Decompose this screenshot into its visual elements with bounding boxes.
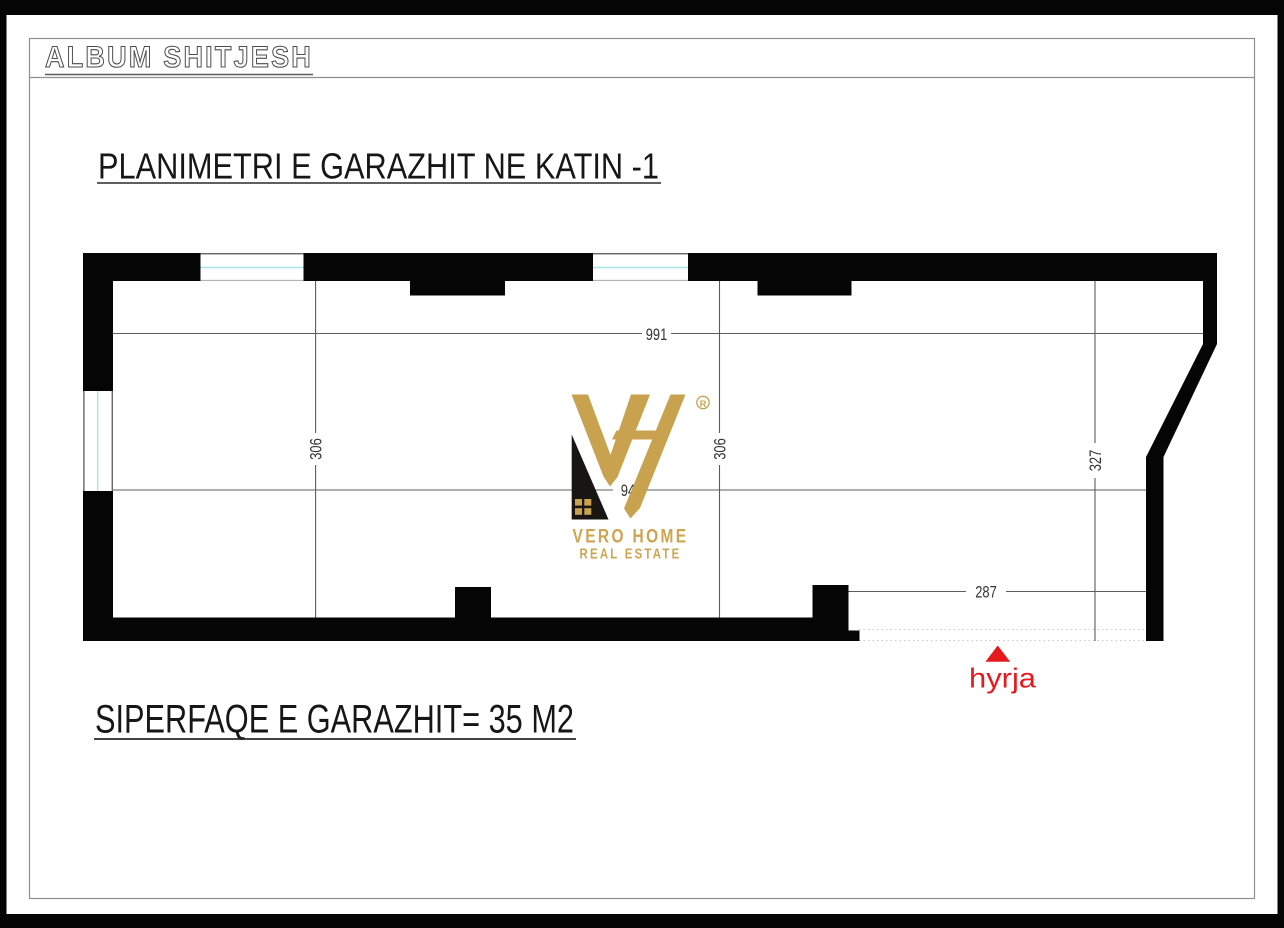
svg-text:hyrja: hyrja <box>969 663 1037 694</box>
svg-text:287: 287 <box>975 583 997 602</box>
svg-text:306: 306 <box>711 438 730 460</box>
svg-text:306: 306 <box>307 438 326 460</box>
svg-text:PLANIMETRI E GARAZHIT NE KATIN: PLANIMETRI E GARAZHIT NE KATIN -1 <box>98 146 659 187</box>
svg-text:REAL ESTATE: REAL ESTATE <box>580 546 682 563</box>
svg-text:ALBUM SHITJESH: ALBUM SHITJESH <box>45 41 313 74</box>
svg-text:SIPERFAQE E GARAZHIT= 35 M2: SIPERFAQE E GARAZHIT= 35 M2 <box>95 698 574 742</box>
svg-text:991: 991 <box>646 325 668 344</box>
svg-text:327: 327 <box>1086 450 1105 472</box>
svg-text:VERO HOME: VERO HOME <box>573 526 689 548</box>
svg-text:R: R <box>700 399 707 409</box>
